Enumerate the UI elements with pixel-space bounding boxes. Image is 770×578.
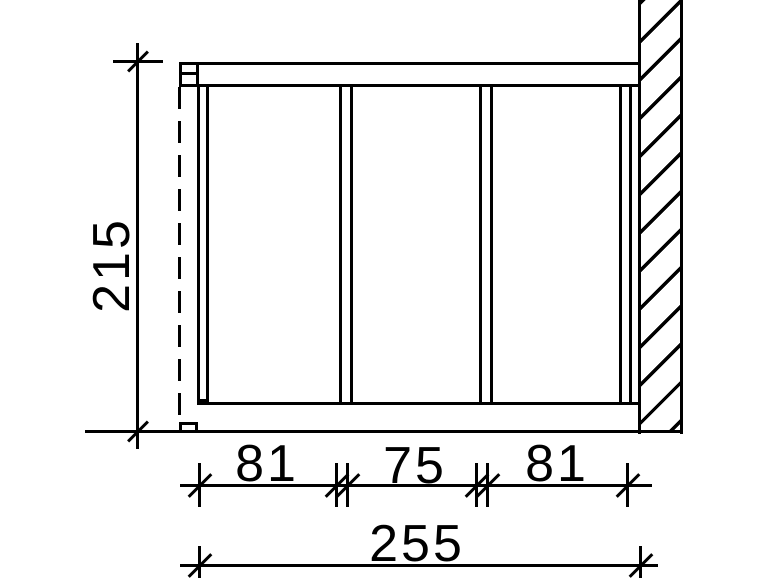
wall-left-edge: [638, 0, 641, 434]
mid-post-1-left-line: [339, 85, 342, 405]
right-post-right-line: [629, 85, 632, 405]
top-beam-end-cap-mid-line: [179, 72, 199, 75]
bottom-rail-bottom-line: [85, 430, 683, 433]
masonry-wall-hatch: [641, 0, 680, 431]
wall-right-edge: [680, 0, 683, 434]
dim-height-label: 215: [86, 195, 138, 335]
top-beam-top-line: [179, 62, 641, 65]
dim-label-panel-left: 81: [217, 438, 317, 490]
mid-post-2-right-line: [490, 85, 493, 405]
left-post-inner-line: [206, 85, 209, 405]
dim-label-panel-right: 81: [507, 438, 607, 490]
mid-post-1-right-line: [350, 85, 353, 405]
technical-drawing-canvas: 215 81 75 81 255: [0, 0, 770, 578]
right-post-left-line: [619, 85, 622, 405]
bottom-rail-top-line: [197, 402, 641, 405]
dim-label-panel-middle: 75: [365, 440, 465, 492]
left-post-outer-line: [197, 85, 200, 405]
hidden-edge-dashed-line: [178, 87, 181, 423]
top-beam-bottom-line: [179, 84, 641, 87]
dim-label-total: 255: [342, 518, 492, 570]
bottom-cap-top-line: [179, 422, 198, 425]
mid-post-2-left-line: [479, 85, 482, 405]
